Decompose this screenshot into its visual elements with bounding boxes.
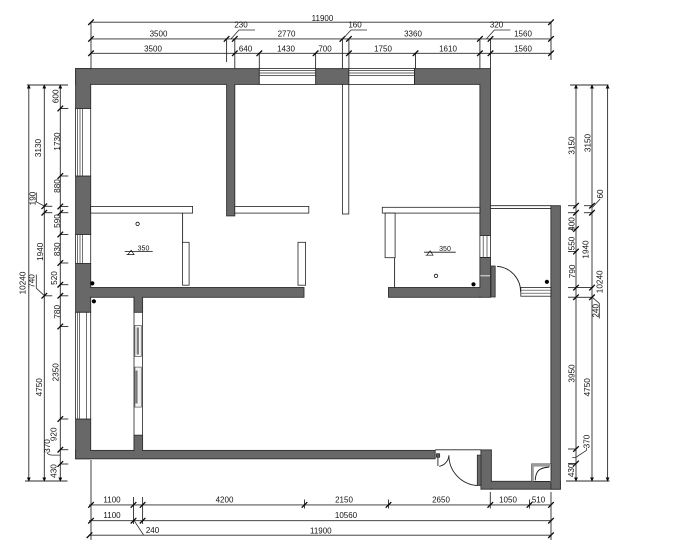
svg-text:1750: 1750 [374,44,392,53]
svg-text:1940: 1940 [36,242,45,261]
svg-text:60: 60 [596,189,605,199]
svg-text:2770: 2770 [278,29,296,38]
svg-text:10560: 10560 [335,511,358,520]
svg-text:4750: 4750 [583,378,592,397]
svg-text:600: 600 [52,89,61,103]
svg-text:1940: 1940 [582,240,591,259]
svg-text:3500: 3500 [150,29,168,38]
svg-text:320: 320 [490,21,504,30]
svg-text:4200: 4200 [216,495,234,504]
svg-text:1100: 1100 [103,495,121,504]
svg-text:1730: 1730 [53,132,62,151]
svg-text:880: 880 [53,179,62,193]
svg-text:10240: 10240 [596,270,605,293]
svg-text:1050: 1050 [499,495,517,504]
svg-text:3150: 3150 [567,136,576,155]
svg-text:510: 510 [532,495,546,504]
svg-text:240: 240 [146,526,160,535]
svg-text:2350: 2350 [52,363,61,382]
svg-text:160: 160 [348,21,362,30]
svg-text:740: 740 [27,274,36,288]
svg-text:370: 370 [582,434,591,448]
svg-text:1100: 1100 [103,511,121,520]
svg-text:350: 350 [138,245,150,252]
svg-text:11900: 11900 [312,14,334,23]
svg-text:790: 790 [568,264,577,278]
svg-text:3360: 3360 [404,29,422,38]
svg-text:3130: 3130 [34,138,43,157]
svg-text:3150: 3150 [583,133,592,152]
svg-text:2650: 2650 [432,495,450,504]
svg-text:640: 640 [239,44,253,53]
svg-text:1610: 1610 [439,44,457,53]
svg-text:3500: 3500 [144,44,162,53]
svg-text:4750: 4750 [35,378,44,397]
svg-text:1560: 1560 [514,44,532,53]
svg-text:830: 830 [53,242,62,256]
svg-text:520: 520 [50,271,59,285]
svg-text:3950: 3950 [567,364,576,383]
svg-text:11900: 11900 [310,526,332,535]
svg-text:430: 430 [567,463,576,477]
svg-text:590: 590 [53,214,62,228]
svg-text:700: 700 [318,44,332,53]
svg-text:370: 370 [43,439,52,453]
svg-text:230: 230 [234,21,248,30]
svg-text:780: 780 [53,305,62,319]
svg-text:400: 400 [567,217,576,231]
svg-text:920: 920 [50,427,59,441]
svg-text:10240: 10240 [19,271,28,294]
svg-text:1560: 1560 [514,29,532,38]
svg-text:350: 350 [439,246,451,253]
svg-text:1430: 1430 [277,44,295,53]
svg-text:430: 430 [50,464,59,478]
svg-text:2150: 2150 [335,495,353,504]
svg-text:550: 550 [567,236,576,250]
